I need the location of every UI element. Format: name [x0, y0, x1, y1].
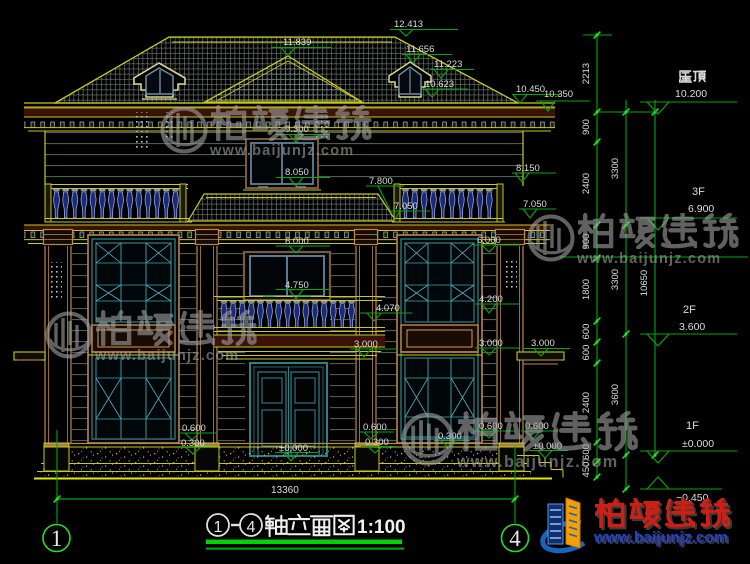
svg-text:13360: 13360 — [271, 485, 299, 496]
svg-text:0.600: 0.600 — [479, 421, 503, 432]
svg-text:12.413: 12.413 — [394, 19, 423, 30]
svg-text:3.000: 3.000 — [479, 338, 503, 349]
svg-text:11.223: 11.223 — [434, 59, 462, 70]
svg-text:3300: 3300 — [610, 269, 621, 290]
svg-text:11.656: 11.656 — [406, 44, 434, 55]
svg-text:4: 4 — [247, 519, 256, 536]
svg-text:2213: 2213 — [581, 63, 592, 84]
svg-text:0.600: 0.600 — [363, 422, 387, 433]
svg-text:3300: 3300 — [610, 158, 621, 179]
svg-text:10.200: 10.200 — [675, 88, 707, 100]
svg-text:600: 600 — [581, 345, 592, 361]
svg-text:±0.000: ±0.000 — [682, 438, 714, 450]
svg-text:3F: 3F — [692, 186, 705, 198]
svg-text:2400: 2400 — [581, 392, 592, 413]
svg-text:1: 1 — [51, 526, 63, 551]
svg-text:10.450: 10.450 — [516, 84, 545, 95]
svg-text:3.000: 3.000 — [354, 339, 378, 350]
svg-text:2F: 2F — [683, 304, 696, 316]
svg-text:3.000: 3.000 — [531, 338, 555, 349]
svg-text:1: 1 — [214, 519, 223, 536]
svg-text:6.900: 6.900 — [688, 203, 714, 215]
svg-text:1F: 1F — [686, 420, 699, 432]
svg-text:0.600: 0.600 — [182, 423, 206, 434]
svg-text:900: 900 — [581, 119, 592, 135]
svg-text:3600: 3600 — [610, 384, 621, 405]
svg-text:2400: 2400 — [581, 173, 592, 194]
svg-text:1800: 1800 — [581, 279, 592, 300]
svg-text:3.600: 3.600 — [679, 321, 705, 333]
svg-text:6.000: 6.000 — [285, 236, 309, 247]
svg-text:10.350: 10.350 — [544, 89, 573, 100]
svg-text:1:100: 1:100 — [357, 517, 406, 538]
svg-text:600: 600 — [581, 324, 592, 340]
svg-text:8.050: 8.050 — [285, 167, 309, 178]
svg-text:4: 4 — [509, 526, 521, 551]
svg-text:4.200: 4.200 — [479, 294, 503, 305]
svg-text:11.839: 11.839 — [283, 37, 311, 48]
svg-text:7.800: 7.800 — [369, 176, 393, 187]
svg-text:7.050: 7.050 — [394, 201, 418, 212]
svg-text:www.baijunjz.com: www.baijunjz.com — [593, 530, 728, 547]
svg-text:10.623: 10.623 — [425, 79, 454, 90]
svg-text:7.050: 7.050 — [523, 199, 547, 210]
svg-text:10650: 10650 — [639, 270, 650, 296]
svg-text:6.000: 6.000 — [477, 235, 501, 246]
svg-text:8.150: 8.150 — [516, 163, 540, 174]
svg-text:4.070: 4.070 — [376, 303, 400, 314]
